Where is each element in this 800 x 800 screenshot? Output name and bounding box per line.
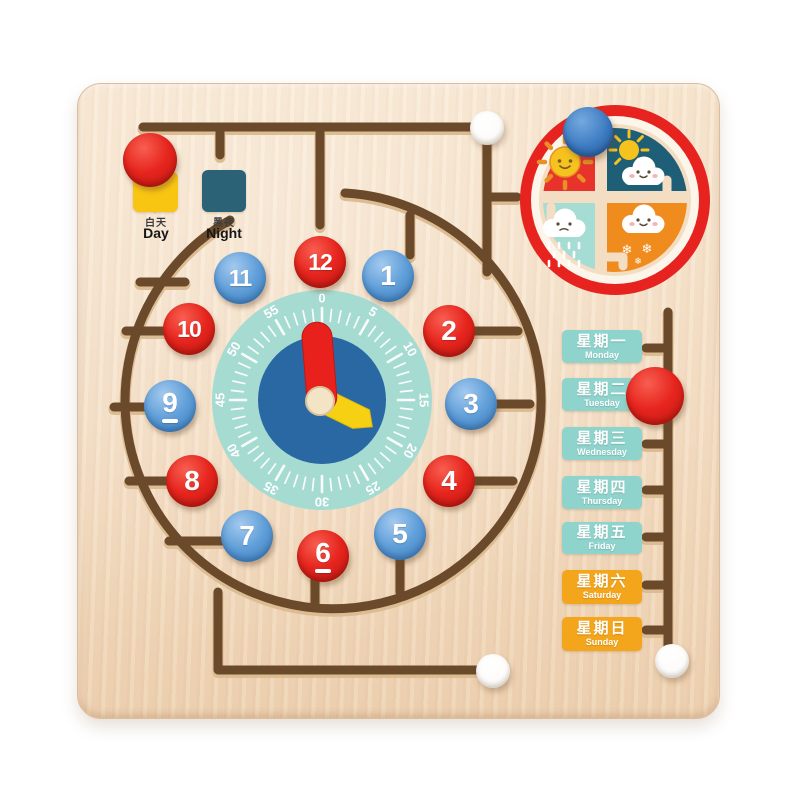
hour-knob-12[interactable]: 12 xyxy=(294,236,346,288)
hour-knob-7[interactable]: 7 xyxy=(221,510,273,562)
white-knob-top[interactable] xyxy=(470,111,504,145)
hour-knob-11[interactable]: 11 xyxy=(214,252,266,304)
day-tag-en: Friday xyxy=(588,541,615,551)
weather-wheel: ❄❄❄ xyxy=(520,105,710,295)
hour-knob-9[interactable]: 9 xyxy=(144,380,196,432)
day-tag-zh: 星期日 xyxy=(576,621,627,637)
minute-label-15: 15 xyxy=(417,393,432,407)
white-knob-bottom-right[interactable] xyxy=(655,644,689,678)
day-tag-en: Wednesday xyxy=(577,447,627,457)
day-tag-en: Monday xyxy=(585,350,619,360)
hour-knob-5[interactable]: 5 xyxy=(374,508,426,560)
digit-underline xyxy=(162,419,178,423)
hour-knob-number: 10 xyxy=(177,318,201,341)
day-tag-sunday: 星期日Sunday xyxy=(562,617,642,651)
day-tag-en: Thursday xyxy=(582,496,623,506)
day-tag-wednesday: 星期三Wednesday xyxy=(562,427,642,460)
minute-label-45: 45 xyxy=(213,393,228,407)
day-tag-thursday: 星期四Thursday xyxy=(562,476,642,509)
hour-knob-number: 4 xyxy=(441,467,457,495)
minute-label-0: 0 xyxy=(318,291,325,306)
snowflake-icon: ❄ xyxy=(634,257,642,267)
hour-knob-number: 9 xyxy=(162,389,178,417)
hour-knob-number: 3 xyxy=(463,390,479,418)
day-tag-zh: 星期四 xyxy=(576,480,627,496)
day-tag-zh: 星期一 xyxy=(576,334,627,350)
night-card[interactable] xyxy=(202,170,246,212)
red-knob-day[interactable] xyxy=(123,133,177,187)
day-tag-zh: 星期六 xyxy=(576,574,627,590)
hour-knob-4[interactable]: 4 xyxy=(423,455,475,507)
digit-underline xyxy=(315,569,331,573)
hour-knob-number: 11 xyxy=(229,267,251,290)
day-tag-monday: 星期一Monday xyxy=(562,330,642,363)
snowflake-icon: ❄ xyxy=(622,243,633,258)
hour-knob-3[interactable]: 3 xyxy=(445,378,497,430)
blue-knob-weather[interactable] xyxy=(563,107,613,157)
hour-knob-number: 6 xyxy=(315,539,331,567)
hour-knob-number: 7 xyxy=(239,522,255,550)
night-label-en: Night xyxy=(189,225,259,241)
hour-knob-number: 8 xyxy=(184,467,200,495)
hour-knob-8[interactable]: 8 xyxy=(166,455,218,507)
hour-knob-number: 1 xyxy=(380,262,396,290)
day-tag-zh: 星期三 xyxy=(576,431,627,447)
minute-label-30: 30 xyxy=(315,495,329,510)
day-label-en: Day xyxy=(121,225,191,241)
day-tag-en: Tuesday xyxy=(584,398,620,408)
clock-hub xyxy=(306,387,334,415)
snowflake-icon: ❄ xyxy=(642,242,653,257)
clock: 0510152025303540455055 xyxy=(212,290,432,510)
hour-knob-2[interactable]: 2 xyxy=(423,305,475,357)
day-tag-en: Saturday xyxy=(583,590,622,600)
product-photo: 0510152025303540455055 xyxy=(0,0,800,800)
day-tag-saturday: 星期六Saturday xyxy=(562,570,642,604)
day-tag-zh: 星期二 xyxy=(576,382,627,398)
hour-knob-number: 5 xyxy=(392,520,408,548)
white-knob-bottom[interactable] xyxy=(476,654,510,688)
hour-knob-1[interactable]: 1 xyxy=(362,250,414,302)
day-tag-friday: 星期五Friday xyxy=(562,522,642,554)
hour-knob-number: 2 xyxy=(441,317,457,345)
hour-knob-10[interactable]: 10 xyxy=(163,303,215,355)
day-tag-zh: 星期五 xyxy=(576,525,627,541)
hour-knob-number: 12 xyxy=(308,251,332,274)
hour-knob-6[interactable]: 6 xyxy=(297,530,349,582)
day-tag-en: Sunday xyxy=(586,637,619,647)
red-knob-week[interactable] xyxy=(626,367,684,425)
